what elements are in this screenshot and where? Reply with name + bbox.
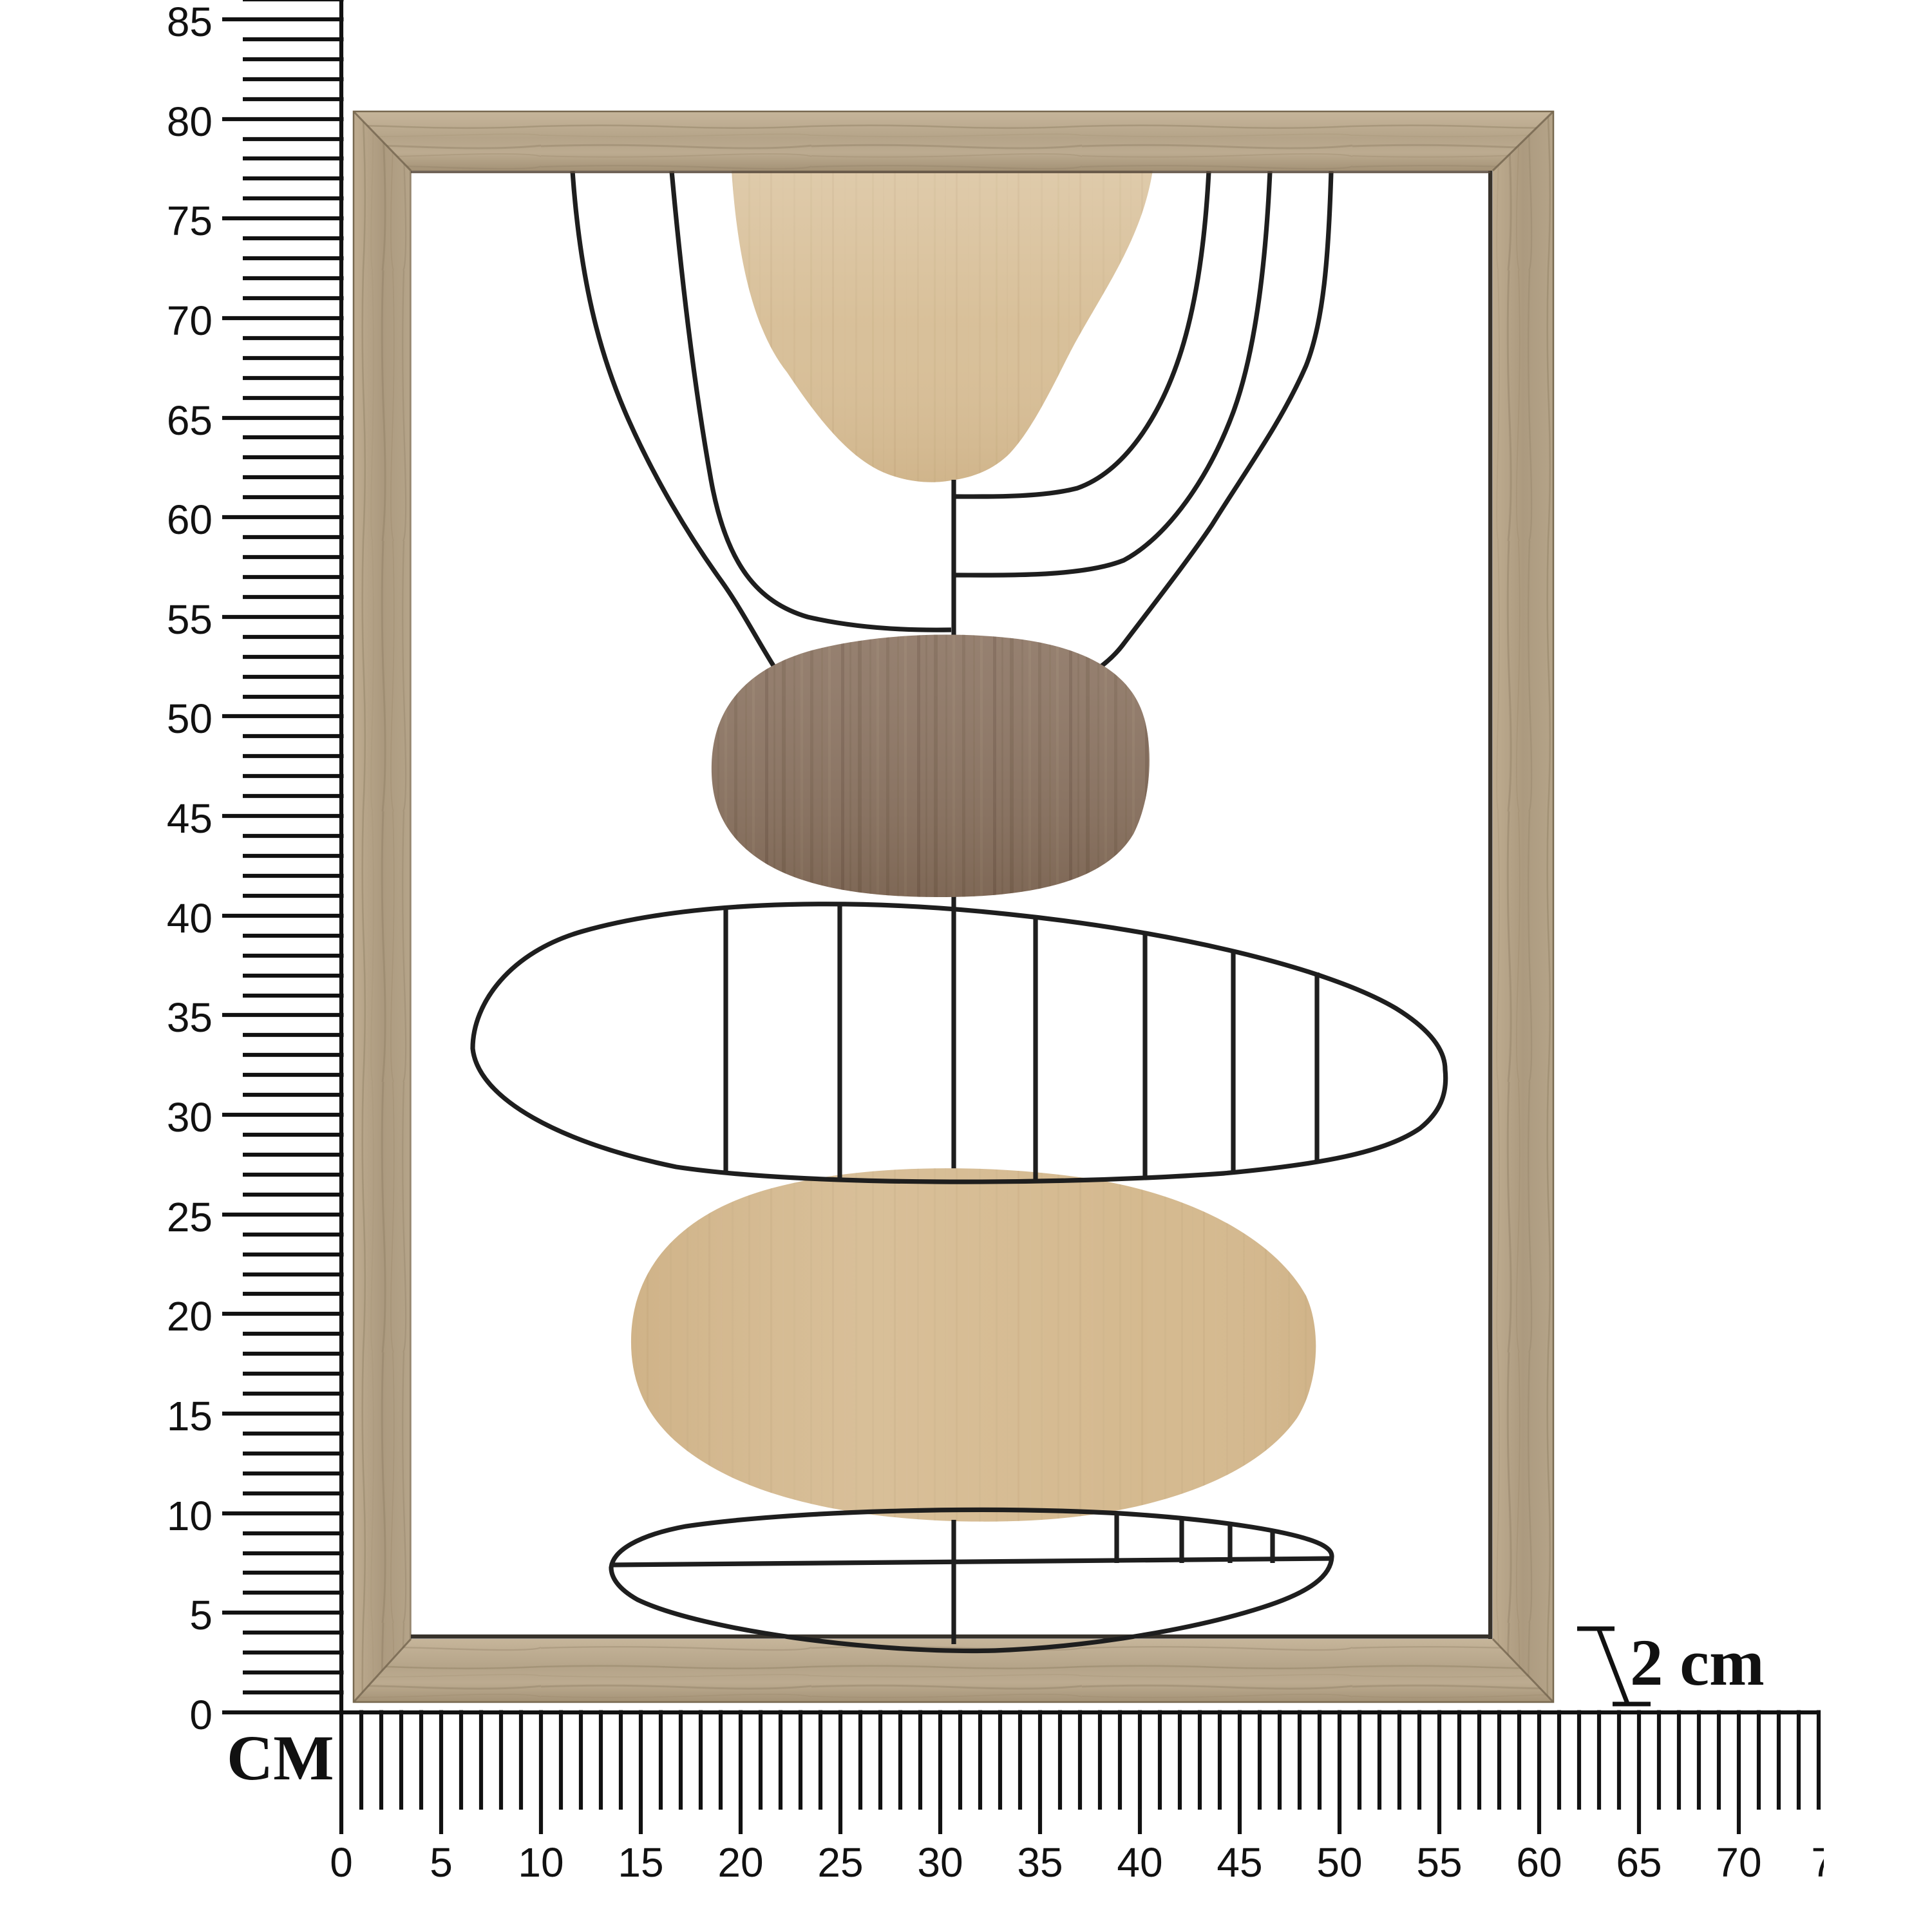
svg-text:25: 25 [167,1194,213,1240]
svg-text:10: 10 [518,1839,563,1886]
svg-text:70: 70 [167,298,213,344]
svg-text:45: 45 [167,795,213,842]
svg-text:25: 25 [817,1839,863,1886]
svg-text:5: 5 [430,1839,453,1886]
svg-text:45: 45 [1217,1839,1262,1886]
svg-text:75: 75 [167,198,213,244]
svg-text:80: 80 [167,99,213,145]
svg-text:60: 60 [167,497,213,543]
svg-text:40: 40 [167,895,213,942]
svg-text:40: 40 [1117,1839,1162,1886]
svg-text:20: 20 [167,1293,213,1340]
svg-text:CM: CM [227,1722,334,1794]
svg-text:35: 35 [167,994,213,1041]
svg-text:2 cm: 2 cm [1630,1626,1765,1700]
svg-text:15: 15 [167,1393,213,1439]
svg-text:85: 85 [167,0,213,45]
svg-text:50: 50 [167,696,213,742]
svg-text:20: 20 [717,1839,763,1886]
svg-text:10: 10 [167,1493,213,1539]
svg-text:15: 15 [618,1839,663,1886]
svg-text:60: 60 [1516,1839,1562,1886]
svg-text:30: 30 [917,1839,963,1886]
svg-text:55: 55 [1416,1839,1462,1886]
svg-text:65: 65 [1616,1839,1662,1886]
svg-text:0: 0 [189,1692,213,1738]
svg-text:5: 5 [189,1592,213,1638]
svg-text:70: 70 [1716,1839,1761,1886]
svg-text:55: 55 [167,596,213,643]
svg-text:0: 0 [330,1839,353,1886]
svg-text:30: 30 [167,1094,213,1141]
svg-text:50: 50 [1316,1839,1362,1886]
svg-text:35: 35 [1017,1839,1063,1886]
svg-text:65: 65 [167,397,213,444]
